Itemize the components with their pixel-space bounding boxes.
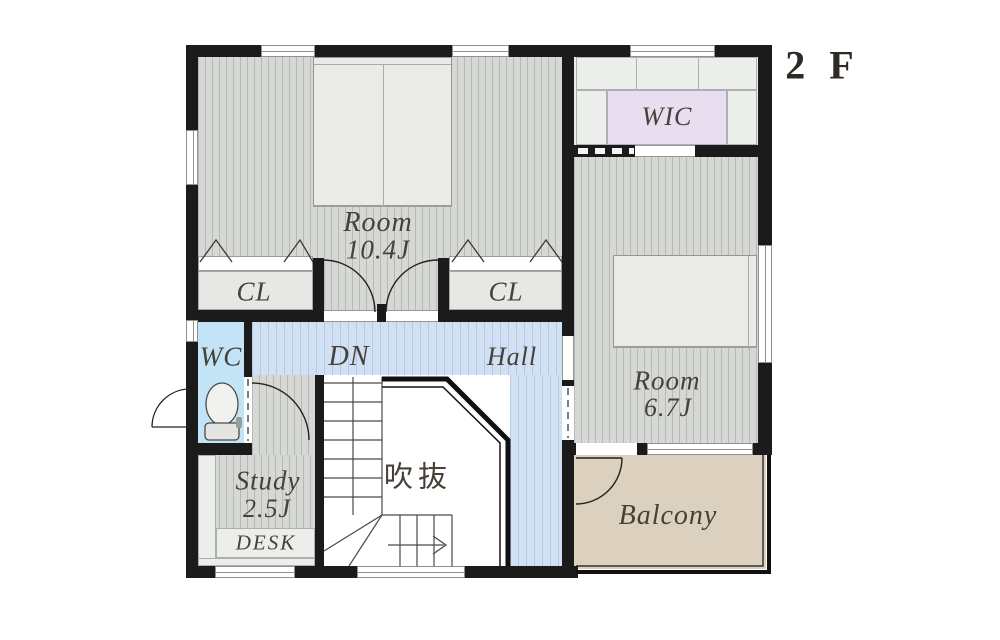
wc-label: WC xyxy=(200,344,243,371)
closet-right-front xyxy=(449,256,562,271)
sliding-door-gap xyxy=(562,386,574,440)
wc-door-gap xyxy=(244,377,252,443)
study-name: Study xyxy=(236,468,301,495)
cabinet-divider xyxy=(698,58,699,91)
window xyxy=(215,566,295,578)
hall-floor-south xyxy=(510,375,562,566)
dn-label: DN xyxy=(329,343,370,371)
wall-stub-left xyxy=(313,258,324,322)
wall-wc-south xyxy=(186,443,252,455)
pocket-opening xyxy=(562,336,574,380)
room-sub-name: Room xyxy=(634,368,701,395)
window xyxy=(452,45,509,57)
wall-center-vertical xyxy=(562,45,574,322)
window xyxy=(261,45,315,57)
wall-hall-room-a xyxy=(562,322,574,336)
room-sub-size: 6.7J xyxy=(644,395,692,421)
void-label: 吹抜 xyxy=(384,464,452,493)
floor-label: 2 F xyxy=(785,42,860,89)
closet-left-label: CL xyxy=(236,279,271,306)
study-bottom-shelf xyxy=(198,558,315,566)
window xyxy=(758,245,772,363)
wic-door-opening xyxy=(635,145,695,157)
wic-label: WIC xyxy=(642,104,693,130)
bed-edge-line xyxy=(748,256,749,349)
door-opening xyxy=(386,310,438,322)
wc-floor xyxy=(198,322,244,443)
door-opening xyxy=(324,310,377,322)
door-arc-icon xyxy=(152,389,190,427)
bed-double xyxy=(313,57,452,207)
study-side-shelf xyxy=(198,455,216,566)
window xyxy=(186,130,198,185)
desk-label: DESK xyxy=(236,533,297,554)
balcony-label: Balcony xyxy=(619,502,718,530)
room-main-name: Room xyxy=(343,209,412,237)
closet-left-front xyxy=(198,256,313,271)
wall-wc-east xyxy=(244,322,252,377)
wall-stub-center xyxy=(377,304,386,322)
study-corridor-floor xyxy=(252,375,315,455)
wic-shelf-right xyxy=(727,90,757,145)
wic-cabinet-row xyxy=(576,57,757,90)
wic-shelf-left xyxy=(576,90,607,145)
bed-head-line xyxy=(314,64,453,65)
wall-stub-right xyxy=(438,258,449,322)
window xyxy=(630,45,715,57)
bed-single xyxy=(613,255,757,348)
floor-plan: Room 10.4J CL CL WIC Room 6.7J WC DN Hal… xyxy=(0,0,1000,640)
balcony-door-opening xyxy=(576,443,637,455)
wall-stair-west xyxy=(315,375,324,566)
window xyxy=(186,320,198,342)
bed-center-line xyxy=(383,64,384,207)
closet-right-label: CL xyxy=(488,279,523,306)
cabinet-divider xyxy=(636,58,637,91)
hall-label: Hall xyxy=(487,344,537,370)
study-size: 2.5J xyxy=(243,496,291,522)
wall-corner-se xyxy=(758,443,772,455)
balcony-sliding-window xyxy=(647,443,753,455)
window xyxy=(357,566,465,578)
room-main-size: 10.4J xyxy=(346,237,410,264)
wall-hall-room-c xyxy=(562,440,574,566)
